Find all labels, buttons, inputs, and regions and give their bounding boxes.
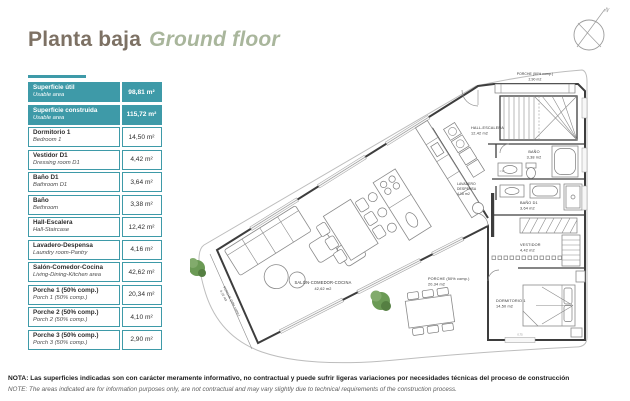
dimension-label: 1,93 (499, 169, 505, 173)
table-row: Salón-Comedor-CocinaLiving-Dining-Kitche… (28, 262, 164, 282)
room-label-bano: BAÑO (528, 149, 539, 154)
room-label-porche1: PORCHE (50% comp.) (428, 277, 470, 281)
room-area-lavadero: 4,16 m2 (457, 192, 470, 196)
room-label-hall: HALL-ESCALERA (471, 126, 504, 130)
row-label-es: Superficie construida (33, 107, 119, 115)
room-area-salon: 42,62 m2 (314, 287, 331, 291)
table-row: Lavadero-DespensaLaundry room-Pantry 4,1… (28, 240, 164, 260)
table-row: Porche 1 (50% comp.)Porch 1 (50% comp.) … (28, 285, 164, 305)
row-label-en: Living-Dining-Kitchen area (33, 272, 119, 279)
row-label-en: Porch 2 (50% comp.) (33, 317, 119, 324)
row-label-es: Lavadero-Despensa (33, 242, 119, 250)
room-area-porche3: 2,90 m2 (529, 78, 542, 82)
tree-icon (190, 258, 206, 277)
row-value: 4,16 m² (122, 240, 162, 260)
row-value: 20,34 m² (122, 285, 162, 305)
pantry-table (473, 203, 484, 214)
row-label-en: Laundry room-Pantry (33, 250, 119, 257)
row-value: 14,50 m² (122, 127, 162, 147)
row-label-en: Porch 1 (50% comp.) (33, 295, 119, 302)
tree-icon (371, 291, 392, 312)
row-value: 4,10 m² (122, 307, 162, 327)
area-table: Superficie útilUsable area 98,81 m² Supe… (28, 82, 164, 352)
bed (523, 285, 575, 326)
footer-note-es: NOTA: Las superficies indicadas son con … (8, 373, 624, 384)
room-label-lavadero-1: LAVADERO (457, 182, 476, 186)
window (582, 98, 587, 118)
row-value: 3,64 m² (122, 172, 162, 192)
row-label-es: Porche 1 (50% comp.) (33, 287, 119, 295)
room-label-lavadero-2: DESPENSA (457, 187, 477, 191)
wall-section (491, 193, 494, 237)
window (582, 148, 587, 172)
compass-north-label: N (602, 6, 610, 15)
room-area-hall: 12,42 m2 (471, 132, 488, 136)
row-label-es: Vestidor D1 (33, 152, 119, 160)
bedroom-window (505, 338, 535, 343)
row-value: 2,90 m² (122, 330, 162, 350)
room-label-bano-d1: BAÑO D1 (520, 200, 538, 205)
table-row: BañoBethroom 3,38 m² (28, 195, 164, 215)
room-area-vestidor: 4,42 m2 (520, 249, 535, 253)
compass-rose-icon: N (574, 6, 611, 50)
row-label-en: Bethroom (33, 205, 119, 212)
dimension-label: 0,75 (517, 333, 523, 337)
row-value: 3,38 m² (122, 195, 162, 215)
row-label-en: Usable area (33, 92, 119, 99)
room-label-porche3: PORCHE (50% comp.) (517, 72, 553, 76)
row-label-en: Bathroom D1 (33, 182, 119, 189)
room-label-vestidor: VESTIDOR (520, 243, 541, 247)
table-row: Superficie construidaUsable area 115,72 … (28, 105, 164, 125)
row-value: 4,42 m² (122, 150, 162, 170)
row-label-es: Baño (33, 197, 119, 205)
porche3-ledge (495, 84, 575, 93)
outdoor-dining-set (404, 287, 456, 336)
row-label-en: Porch 3 (50% comp.) (33, 340, 119, 347)
table-row: Porche 3 (50% comp.)Porch 3 (50% comp.) … (28, 330, 164, 350)
row-label-es: Hall-Escalera (33, 219, 119, 227)
nightstand (571, 328, 582, 337)
floor-plan: PORCHE (50% comp.) 2,90 m2 HALL-ESCALERA… (190, 0, 630, 372)
nightstand (576, 271, 585, 282)
room-label-dormitorio: DORMITORIO 1 (496, 299, 526, 303)
table-row: Hall-EscaleraHall-Staircase 12,42 m² (28, 217, 164, 237)
row-label-en: Usable area (33, 115, 119, 122)
row-value: 12,42 m² (122, 217, 162, 237)
room-area-bano: 3,38 m2 (527, 156, 542, 160)
room-area-dormitorio: 14,50 m2 (496, 305, 513, 309)
room-area-bano-d1: 3,64 m2 (520, 207, 535, 211)
row-value: 42,62 m² (122, 262, 162, 282)
row-value: 115,72 m² (122, 105, 162, 125)
row-label-en: Hall-Staircase (33, 227, 119, 234)
row-label-es: Salón-Comedor-Cocina (33, 264, 119, 272)
table-row: Porche 2 (50% comp.)Porch 2 (50% comp.) … (28, 307, 164, 327)
row-label-es: Porche 2 (50% comp.) (33, 309, 119, 317)
table-row: Baño D1Bathroom D1 3,64 m² (28, 172, 164, 192)
window (582, 186, 587, 210)
row-value: 98,81 m² (122, 82, 162, 102)
room-label-salon: SALÓN-COMEDOR-COCINA (295, 280, 352, 285)
row-label-en: Dressing room D1 (33, 160, 119, 167)
room-area-porche1: 20,34 m2 (428, 283, 445, 287)
title-accent-underline (28, 75, 86, 78)
row-label-es: Superficie útil (33, 84, 119, 92)
footer-notes: NOTA: Las superficies indicadas son con … (8, 373, 624, 395)
row-label-en: Bedroom 1 (33, 137, 119, 144)
table-row: Vestidor D1Dressing room D1 4,42 m² (28, 150, 164, 170)
table-row: Dormitorio 1Bedroom 1 14,50 m² (28, 127, 164, 147)
table-row: Superficie útilUsable area 98,81 m² (28, 82, 164, 102)
footer-note-en: NOTE: The areas indicated are for inform… (8, 384, 624, 395)
row-label-es: Porche 3 (50% comp.) (33, 332, 119, 340)
row-label-es: Baño D1 (33, 174, 119, 182)
title-spanish: Planta baja (28, 28, 141, 51)
row-label-es: Dormitorio 1 (33, 129, 119, 137)
